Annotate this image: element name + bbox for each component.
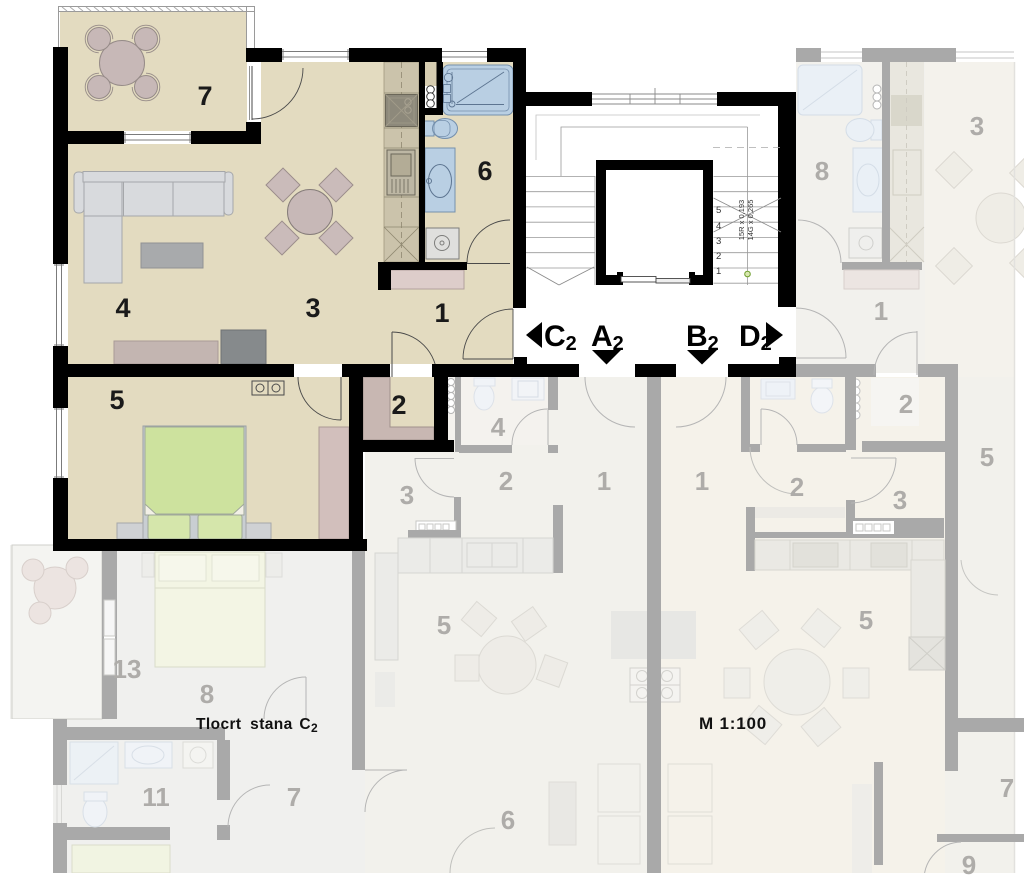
svg-text:8: 8 xyxy=(815,156,829,186)
svg-text:5: 5 xyxy=(859,605,873,635)
svg-text:5: 5 xyxy=(109,385,124,415)
svg-text:1: 1 xyxy=(716,266,721,277)
svg-text:3: 3 xyxy=(400,480,414,510)
svg-text:2: 2 xyxy=(391,390,406,420)
svg-text:M 1:100: M 1:100 xyxy=(699,714,767,733)
svg-text:13: 13 xyxy=(113,654,142,684)
svg-text:15R x 0,193: 15R x 0,193 xyxy=(737,200,746,240)
svg-text:6: 6 xyxy=(501,805,515,835)
svg-text:8: 8 xyxy=(200,679,214,709)
svg-text:3: 3 xyxy=(716,236,721,247)
svg-text:9: 9 xyxy=(962,850,976,880)
svg-text:2: 2 xyxy=(899,389,913,419)
svg-text:3: 3 xyxy=(970,111,984,141)
svg-text:3: 3 xyxy=(305,293,320,323)
svg-text:5: 5 xyxy=(716,205,721,216)
svg-text:11: 11 xyxy=(142,782,170,812)
svg-text:2: 2 xyxy=(716,251,721,262)
svg-text:6: 6 xyxy=(477,156,492,186)
svg-text:4: 4 xyxy=(716,221,721,232)
svg-text:2: 2 xyxy=(499,466,513,496)
svg-text:1: 1 xyxy=(597,466,611,496)
svg-text:1: 1 xyxy=(695,466,709,496)
svg-text:1: 1 xyxy=(874,296,888,326)
svg-text:4: 4 xyxy=(115,293,130,323)
svg-text:1: 1 xyxy=(434,298,449,328)
svg-text:5: 5 xyxy=(980,442,994,472)
svg-text:7: 7 xyxy=(1000,773,1014,803)
svg-text:7: 7 xyxy=(287,782,301,812)
svg-text:Tlocrt stana C2: Tlocrt stana C2 xyxy=(196,716,318,735)
svg-text:4: 4 xyxy=(491,412,506,442)
svg-text:14G x 0,265: 14G x 0,265 xyxy=(746,200,755,241)
svg-text:5: 5 xyxy=(437,610,451,640)
svg-text:7: 7 xyxy=(197,81,212,111)
svg-text:3: 3 xyxy=(893,485,907,515)
svg-text:2: 2 xyxy=(790,472,804,502)
